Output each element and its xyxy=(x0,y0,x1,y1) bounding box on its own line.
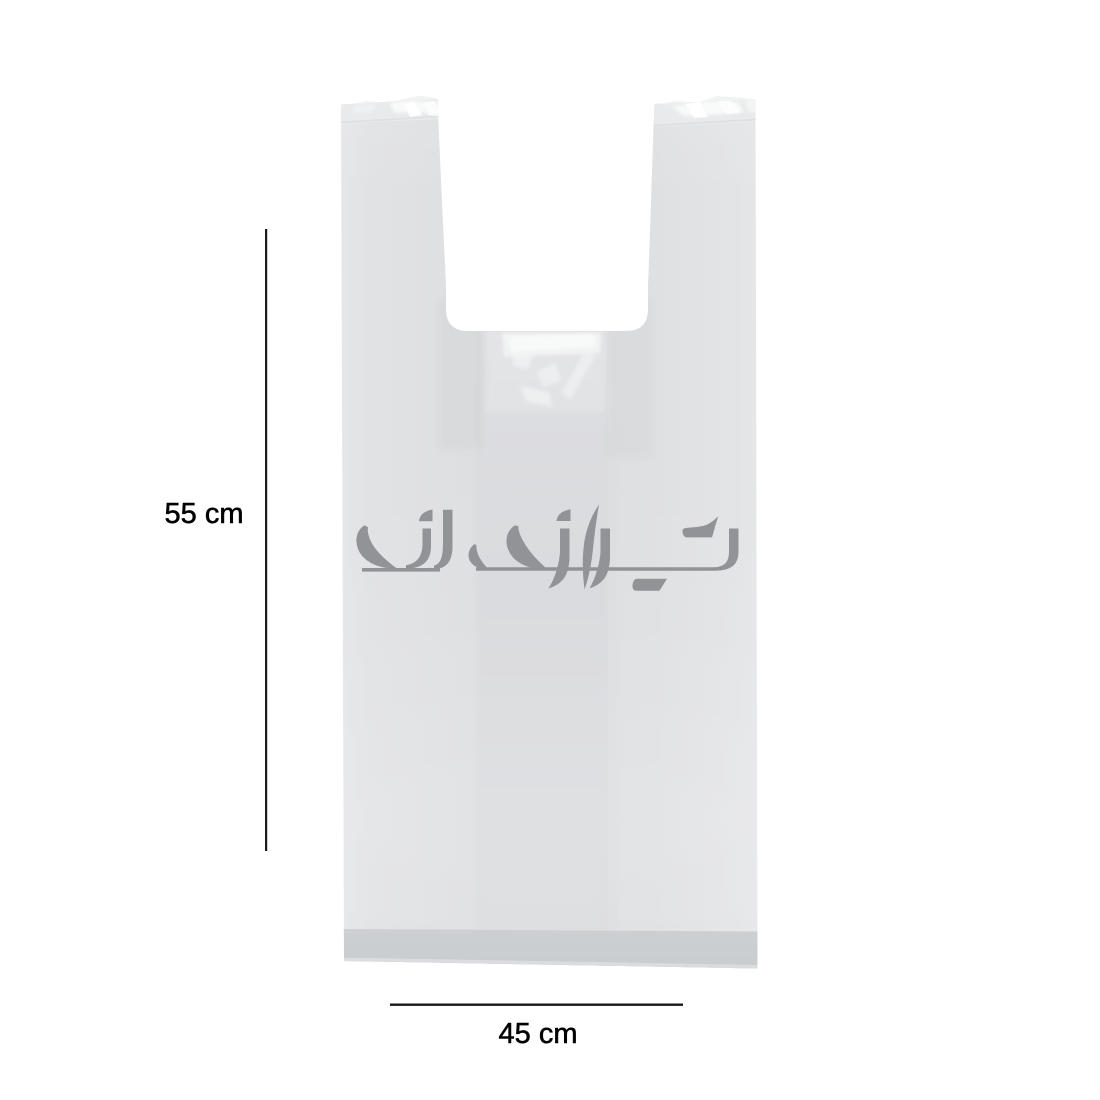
svg-text:55 cm: 55 cm xyxy=(165,498,244,530)
svg-text:45 cm: 45 cm xyxy=(499,1018,578,1050)
